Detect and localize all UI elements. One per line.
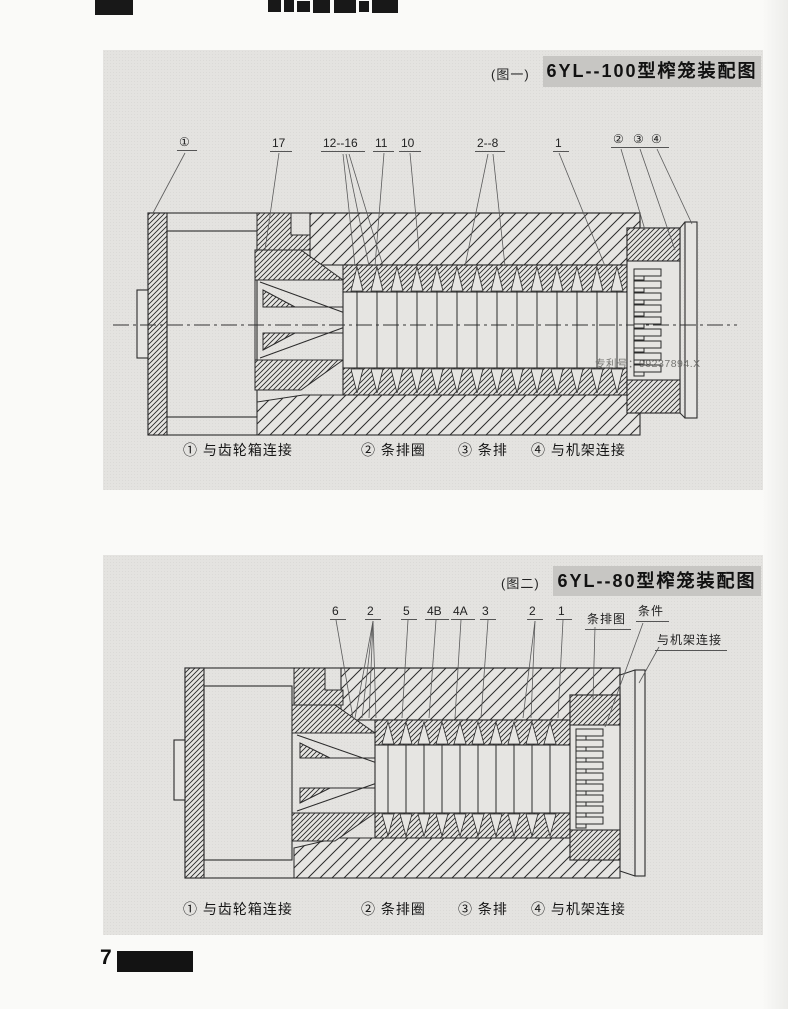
figure1-title-bar: 6YL--100型榨笼装配图 [543,56,761,87]
figure1-part-label-c2: ② [611,133,631,148]
figure1-part-label-1b: 1 [553,137,569,152]
figure1-legend: ① 与齿轮箱连接 ② 条排圈 ③ 条排 ④ 与机架连接 [103,440,763,462]
figure2-legend-item-2: ② 条排圈 [361,899,426,919]
figure2-callout-tiaopai-ring: 条排图 [585,610,631,630]
figure1-part-label-17: 17 [270,137,292,152]
scan-edge-shading [762,0,788,1009]
page-number-block [117,951,193,972]
figure1-part-label-10: 10 [399,137,421,152]
patent-number-watermark: 专利号：99237894.X [595,356,701,371]
figure1-part-label-1: ① [177,136,197,151]
figure2-title-bar: 6YL--80型榨笼装配图 [553,566,761,596]
figure1-caption: (图一) [491,64,530,83]
figure2-part-label-2b: 2 [527,605,543,620]
figure2-legend-item-4: ④ 与机架连接 [531,899,626,919]
figure1-part-label-c4: ④ [649,133,669,148]
figure2-part-label-3: 3 [480,605,496,620]
scanned-page: (图一) 6YL--100型榨笼装配图 ① 17 12--16 11 10 2-… [0,0,788,1009]
figure1-part-label-11: 11 [373,137,394,152]
figure2-title: 6YL--80型榨笼装配图 [557,571,756,591]
figure2-panel: (图二) 6YL--80型榨笼装配图 6 2 5 4B 4A 3 2 1 条排图… [103,555,763,935]
figure2-part-label-5: 5 [401,605,417,620]
figure1-legend-item-1: ① 与齿轮箱连接 [183,440,293,460]
figure2-part-label-6: 6 [330,605,346,620]
figure1-part-label-2-8: 2--8 [475,137,505,152]
figure2-part-label-2a: 2 [365,605,381,620]
page-number: 7 [100,946,112,970]
figure2-callout-tiaojian: 条件 [636,602,669,622]
figure2-callout-frame-connection: 与机架连接 [655,631,727,651]
figure1-title: 6YL--100型榨笼装配图 [546,61,757,81]
figure2-part-label-4b: 4B [425,605,449,620]
figure2-legend: ① 与齿轮箱连接 ② 条排圈 ③ 条排 ④ 与机架连接 [103,899,763,921]
figure1-part-label-12-16: 12--16 [321,137,365,152]
figure1-legend-item-3: ③ 条排 [458,440,508,460]
figure1-legend-item-4: ④ 与机架连接 [531,440,626,460]
figure1-legend-item-2: ② 条排圈 [361,440,426,460]
figure1-part-label-c3: ③ [631,133,651,148]
figure1-drawing [103,50,763,490]
figure2-caption: (图二) [501,573,540,592]
figure2-part-label-1: 1 [556,605,572,620]
figure2-legend-item-3: ③ 条排 [458,899,508,919]
figure2-legend-item-1: ① 与齿轮箱连接 [183,899,293,919]
figure1-panel: (图一) 6YL--100型榨笼装配图 ① 17 12--16 11 10 2-… [103,50,763,490]
figure2-part-label-4a: 4A [451,605,475,620]
